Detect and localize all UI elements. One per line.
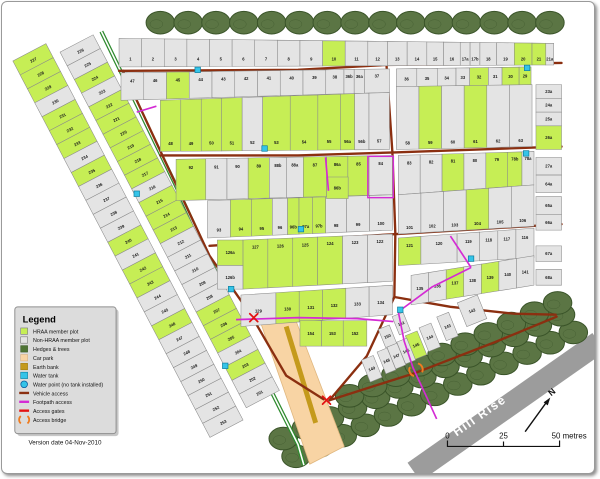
plot-19 [497,43,515,66]
plot-label: 20 [521,56,526,61]
water-tank-icon [398,307,404,313]
legend-title: Legend [23,315,56,325]
north-arrow-label: N [546,386,557,398]
plot-label: 14 [415,56,420,61]
plot-label: 122 [377,239,385,244]
plot-label: 141 [522,269,530,274]
plot-label: 87 [313,162,318,167]
plot-label: 125 [302,242,310,247]
plot-label: 133 [354,301,362,306]
legend-item-label: Earth bank [33,365,59,371]
legend-swatch-line [19,401,29,403]
plot-2 [142,39,165,67]
plot-label: 94 [239,227,244,232]
legend-swatch-square [21,337,28,343]
plot-label: 100 [378,221,386,226]
plot-label: 64a [545,181,553,186]
plot-label: 17b [471,56,479,61]
plot-label: 19 [503,56,508,61]
plot-label: 106 [519,218,527,223]
plot-label: 54 [302,140,307,145]
plot-37 [364,69,389,93]
tree-icon [146,11,175,34]
plot-4 [187,39,210,66]
plot-121 [398,236,421,265]
plot-label: 46 [153,78,158,83]
tree-icon [341,11,370,34]
plot-label: 138 [469,278,477,283]
plot-label: 58 [405,140,410,145]
plot-label: 68a [545,275,553,280]
plot-label: 63 [518,138,523,143]
plot-label: 30 [508,74,513,79]
legend-item-label: Hedges & trees [33,347,70,353]
legend-swatch-square [21,328,28,334]
plot-9 [300,40,323,66]
plot-label: 23a [545,89,553,94]
plot-label: 11 [354,56,359,61]
plot-label: 85 [356,161,361,166]
tree-icon [452,11,481,34]
plot-116 [516,228,534,259]
plot-label: 97b [315,224,323,229]
plot-label: 49 [189,141,194,146]
tree-icon [480,11,509,34]
plot-label: 81 [451,159,456,164]
plot-label: 25a [545,117,553,122]
plot-label: 135 [416,286,424,291]
plot-label: 42 [244,76,249,81]
plot-label: 32 [477,75,482,80]
plot-label: 140 [504,272,512,277]
legend-swatch-square [21,363,28,369]
plot-18 [480,42,497,65]
plot-label: 88b [274,163,282,168]
plot-label: 61 [473,139,478,144]
plot-15 [427,42,444,66]
legend-item: Water point (no tank installed) [21,381,104,389]
plot-13 [387,41,407,65]
plot-label: 51 [230,140,235,145]
tree-icon [397,11,426,34]
plot-label: 55 [327,139,332,144]
plot-46 [144,72,167,100]
plot-20 [514,43,532,65]
plot-label: 34 [444,76,449,81]
tree-icon [369,11,398,34]
allotment-site-map: 2272282292302312322332342352362372382392… [2,2,594,473]
plot-3 [164,39,187,67]
plot-10 [323,41,346,66]
plot-label: 57 [377,139,382,144]
tree-icon [230,11,259,34]
plot-label: 29 [523,73,528,78]
plot-label: 16 [450,56,455,61]
plot-14 [407,42,427,66]
water-tank-icon [195,67,201,73]
plot-label: 12 [375,56,380,61]
legend-item-label: Footpath access [33,400,72,406]
water-tank-icon [228,286,234,292]
plot-44 [189,71,212,98]
plot-label: 52 [250,140,255,145]
water-tank-icon [298,226,304,232]
plot-label: 88a [291,163,299,168]
plot-11 [345,41,368,66]
plot-label: 101 [406,225,414,230]
plot-label: 105 [497,220,505,225]
water-tank-icon [134,191,140,197]
plot-label: 119 [465,239,472,244]
plot-label: 24a [545,103,553,108]
legend-item-label: Non-HRAA member plot [33,338,90,344]
legend-swatch-square [21,372,28,378]
legend-item-label: Vehicle access [33,391,68,397]
plot-label: 78a [525,156,533,161]
plot-6 [232,40,255,67]
plot-label: 40 [289,75,294,80]
plot-12 [368,41,388,66]
plot-label: 67a [545,251,553,256]
tree-icon [424,11,453,34]
plot-label: 41 [267,76,272,81]
plot-label: 80 [473,158,478,163]
water-tank-icon [523,151,529,157]
tree-icon [536,11,565,34]
plot-label: 36b [346,74,354,79]
legend-swatch-circle [21,381,28,388]
water-tank-icon [524,65,530,71]
plot-label: 104 [474,221,482,226]
plot-label: 123 [352,240,360,245]
plot-42 [235,71,258,97]
plot-label: 82 [429,160,434,165]
plot-21a [546,43,554,65]
plot-label: 48 [168,141,173,146]
plot-label: 96 [278,225,283,230]
plot-label: 21a [546,56,554,61]
plot-label: 89 [256,163,261,168]
legend-swatch-square [21,355,28,361]
scale-50: 50 metres [552,432,587,441]
plot-label: 131 [307,305,315,310]
plot-label: 116 [522,235,529,240]
legend-item-label: HRAA member plot [33,329,79,335]
plot-label: 45 [176,77,181,82]
plot-117 [498,229,516,259]
map-frame: 2272282292302312322332342352362372382392… [1,1,595,474]
plot-39 [303,70,326,95]
plot-label: 37 [375,74,380,79]
plot-label: 120 [436,241,444,246]
plot-label: 152 [352,331,360,336]
plot-label: 44 [198,77,203,82]
water-tank-icon [468,256,474,262]
tree-icon [202,11,231,34]
plot-label: 53 [274,140,279,145]
plot-label: 139 [487,275,495,280]
plot-label: 65a [545,203,553,208]
plot-label: 27a [545,164,553,169]
plot-label: 154 [307,331,315,336]
plot-label: 124 [327,241,335,246]
plot-label: 117 [504,236,511,241]
plot-label: 102 [429,224,437,229]
plot-label: 83 [407,160,412,165]
allotment-map-figure: 2272282292302312322332342352362372382392… [0,0,600,479]
legend-item: Water tank [21,372,59,379]
plot-label: 121 [406,243,414,248]
plot-label: 35 [425,76,430,81]
plot-17a [460,42,470,65]
plot-label: 93 [217,228,222,233]
legend-panel [15,307,116,434]
legend-item-label: Car park [33,356,54,362]
plot-label: 95 [260,226,265,231]
plot-label: 31 [493,74,498,79]
plot-36b [344,69,354,93]
plot-label: 126 [277,243,285,248]
plot-38 [326,70,344,95]
plot-label: 15 [433,56,438,61]
plot-43 [212,71,235,98]
plot-41 [258,70,281,96]
tree-icon [285,11,314,34]
tree-icon [174,11,203,34]
plot-label: 126b [225,275,235,280]
plot-label: 21 [537,56,542,61]
plot-8 [277,40,300,66]
plot-label: 91 [214,164,219,169]
plot-label: 56a [344,139,352,144]
legend-item-label: Access bridge [33,418,66,424]
plot-40 [280,70,303,96]
tree-icon [257,11,286,34]
plot-label: 62 [496,139,501,144]
plot-label: 78b [511,156,519,161]
plot-label: 84 [378,161,383,166]
water-tank-icon [222,363,228,369]
plot-21 [532,43,546,65]
legend-swatch-line [19,409,29,411]
plot-17b [470,42,480,65]
plot-label: 96b [290,225,298,230]
plot-1 [119,38,142,67]
plot-label: 92 [189,165,194,170]
plot-118 [480,231,498,261]
legend-swatch-square [21,346,28,352]
plot-label: 33 [461,75,466,80]
version-text: Version date 04-Nov-2010 [28,439,101,446]
plot-label: 129 [255,309,263,314]
plot-5 [210,39,233,66]
plot-label: 59 [428,140,433,145]
plot-label: 118 [485,238,492,243]
legend-item: Car park [21,355,54,362]
plot-label: 17a [462,56,470,61]
plot-label: 103 [451,222,459,227]
tree-icon [508,11,537,34]
plot-label: 10 [332,56,337,61]
plot-label: 38 [333,74,338,79]
plot-label: 36 [404,77,409,82]
plot-label: 99 [356,222,361,227]
plot-label: 60 [451,140,456,145]
plot-label: 56b [358,139,366,144]
plot-label: 86a [334,162,342,167]
legend-item-label: Water point (no tank installed) [33,382,103,388]
plot-36a [354,69,364,93]
legend-item-label: Access gates [33,409,65,415]
plot-label: 98 [334,223,339,228]
plot-7 [255,40,278,66]
scale-25: 25 [499,432,508,441]
plot-label: 39 [312,75,317,80]
plot-label: 13 [395,56,400,61]
plot-label: 126a [226,250,236,255]
plot-label: 43 [221,77,226,82]
plot-16 [444,42,461,65]
plot-47 [121,72,144,100]
plot-label: 132 [331,303,339,308]
plot-label: 79 [494,157,499,162]
plot-label: 86b [334,185,342,190]
scale-0: 0 [445,432,450,441]
plot-label: 26a [545,135,553,140]
plot-label: 47 [130,78,135,83]
legend-item-label: Water tank [33,374,59,380]
plot-label: 134 [377,300,385,305]
plot-45 [167,72,190,99]
tree-icon [313,11,342,34]
tree-icon [543,292,572,315]
plot-label: 90 [235,164,240,169]
plot-label: 18 [486,56,491,61]
plot-label: 127 [252,244,260,249]
plot-label: 36a [356,74,364,79]
plot-label: 130 [284,306,292,311]
water-tank-icon [262,146,268,152]
plot-label: 50 [209,141,214,146]
plot-label: 137 [452,281,460,286]
plot-label: 153 [329,331,337,336]
legend-swatch-line [19,392,29,394]
legend-item: Earth bank [21,363,59,370]
plot-label: 66a [545,220,553,225]
